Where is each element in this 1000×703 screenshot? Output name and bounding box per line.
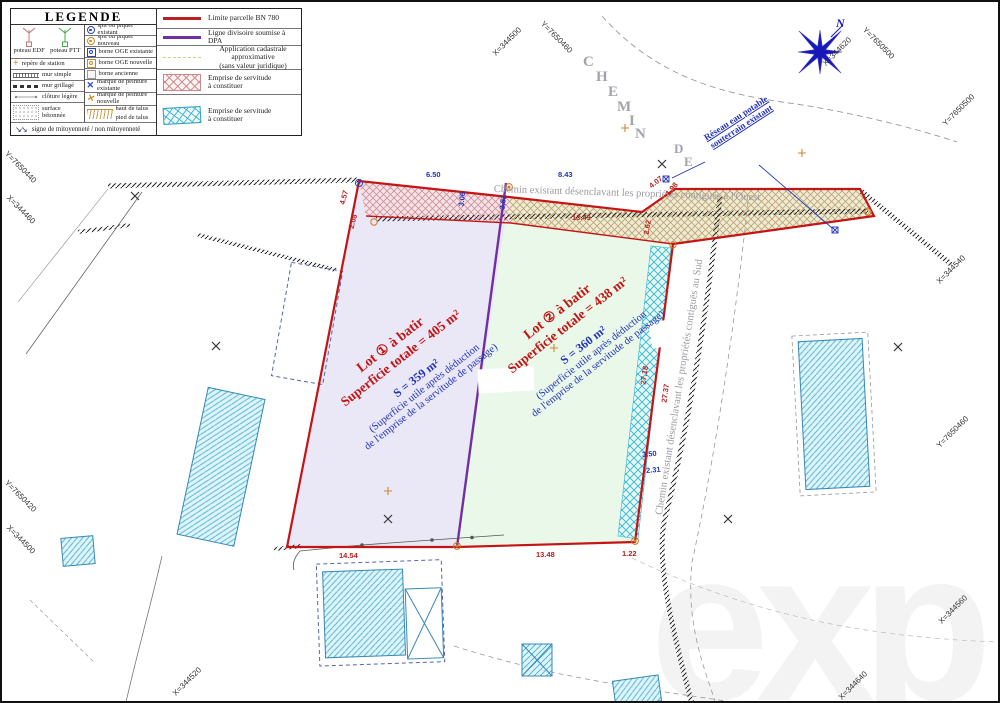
- road-letter-h: H: [596, 69, 608, 86]
- legend-row-marque-existante: ✕ marque de peinture existante: [85, 80, 157, 93]
- pied-de-talus-label: pied de talus: [116, 115, 149, 122]
- limite-parcelle-icon: [163, 17, 201, 20]
- marque-peinture-existante-icon: ✕: [87, 81, 95, 90]
- building-small-left: [61, 536, 95, 567]
- mur-grillage-icon: [13, 85, 39, 88]
- dim-350: 3.50: [642, 449, 657, 459]
- survey-plan-sheet: exp: [0, 0, 1000, 703]
- dim-650: 6.50: [426, 170, 441, 179]
- legend-row-borne-existante: borne OGE existante: [85, 47, 157, 58]
- building-hatched-left: [177, 387, 265, 546]
- application-cadastrale-label2: (sans valeur juridique): [219, 61, 286, 70]
- building-bottom-center: [316, 560, 444, 666]
- legend-column-1: poteau EDF poteau PTT + repère de sta: [11, 25, 85, 122]
- spit-existant-label: spit ou piquet existant: [98, 25, 155, 36]
- talus-icon: [87, 109, 113, 119]
- marque-peinture-nouvelle-icon: ✕: [85, 93, 95, 104]
- mur-simple-icon: [13, 73, 39, 78]
- poteau-edf-icon: [20, 27, 38, 47]
- dim-231: 2.31: [646, 465, 661, 475]
- legend-column-3: Limite parcelle BN 780 Ligne divisoire s…: [157, 9, 301, 135]
- borne-oge-existante-label: borne OGE existante: [99, 49, 154, 56]
- legend-row-mur-simple: mur simple: [11, 70, 84, 81]
- spit-nouveau-icon: [87, 37, 95, 45]
- poteau-ptt-icon: [56, 27, 74, 47]
- legend-row-cloture: clôture légère: [11, 92, 84, 103]
- borne-ancienne-label: borne ancienne: [99, 71, 139, 78]
- dim-1349: 13.49: [572, 213, 591, 222]
- emprise-servitude-pink-icon: [163, 74, 201, 91]
- emprise-servitude-pink-label2: à constituer: [208, 81, 243, 90]
- application-cadastrale-label: Application cadastrale approximative: [219, 44, 286, 61]
- legend-column-2: spit ou piquet existant spit ou piquet n…: [85, 25, 157, 122]
- legend-row-limite: Limite parcelle BN 780: [157, 9, 301, 29]
- dim-1348: 13.48: [536, 550, 555, 559]
- compass-north-label: N: [836, 16, 845, 31]
- borne-ancienne-icon: [87, 70, 96, 79]
- dim-381: 3.81: [498, 194, 509, 210]
- application-cadastrale-icon: [163, 57, 201, 58]
- emprise-servitude-cyan-label2: à constituer: [208, 114, 243, 123]
- spit-nouveau-label: spit ou piquet nouveau: [98, 36, 155, 47]
- mur-simple-label: mur simple: [42, 72, 71, 79]
- legend-title: LEGENDE: [11, 9, 156, 25]
- cloture-legere-icon: [13, 94, 39, 100]
- legend-row-borne-ancienne: borne ancienne: [85, 69, 157, 80]
- limite-parcelle-label: Limite parcelle BN 780: [208, 14, 279, 22]
- dim-1454: 14.54: [339, 551, 358, 560]
- road-letter-i: I: [629, 113, 635, 130]
- road-letter-d: D: [674, 141, 683, 157]
- marque-peinture-existante-label: marque de peinture existante: [97, 80, 154, 93]
- dim-122: 1.22: [622, 549, 637, 558]
- legend-box: LEGENDE poteau EDF: [10, 8, 302, 136]
- building-small-square: [522, 644, 552, 676]
- legend-row-cadastrale: Application cadastrale approximative (sa…: [157, 46, 301, 70]
- mitoyennete-icon: ↘∕↘: [15, 125, 27, 134]
- marque-peinture-nouvelle-label: marque de peinture nouvelle: [97, 93, 154, 106]
- legend-row-poteaux: poteau EDF poteau PTT: [11, 25, 84, 59]
- mitoyennete-label: signe de mitoyenneté / non mitoyenneté: [32, 126, 141, 133]
- legend-row-marque-nouvelle: ✕ marque de peinture nouvelle: [85, 93, 157, 106]
- ligne-divisoire-icon: [163, 36, 201, 39]
- repere-label: repère de station: [22, 61, 65, 68]
- legend-row-spit-existant: spit ou piquet existant: [85, 25, 157, 36]
- surface-betonnee-label: surface bétonnée: [42, 106, 82, 120]
- borne-oge-nouvelle-icon: [87, 59, 96, 68]
- legend-row-spit-nouveau: spit ou piquet nouveau: [85, 36, 157, 47]
- building-right: [792, 332, 876, 496]
- borne-oge-existante-icon: [87, 48, 96, 57]
- legend-row-mitoyennete: ↘∕↘ signe de mitoyenneté / non mitoyenne…: [11, 122, 156, 135]
- poteau-ptt-label: poteau PTT: [50, 47, 81, 54]
- legend-row-talus: haut de talus pied de talus: [85, 106, 157, 122]
- road-letter-e2: E: [684, 154, 693, 170]
- mur-grillage-label: mur grillagé: [42, 83, 74, 90]
- spit-existant-icon: [87, 26, 95, 34]
- legend-row-repere: + repère de station: [11, 59, 84, 70]
- ligne-divisoire-label: Ligne divisoire soumise à DPA: [208, 29, 298, 46]
- legend-row-servitude-cyan: Emprise de servitude à constituer: [157, 95, 301, 135]
- haut-de-talus-label: haut de talus: [116, 106, 149, 113]
- legend-row-mur-grillage: mur grillagé: [11, 81, 84, 92]
- cloture-label: clôture légère: [42, 94, 78, 101]
- dim-306: 3.06: [457, 191, 468, 207]
- road-letter-c: C: [583, 54, 594, 71]
- road-letter-n: N: [635, 126, 646, 143]
- emprise-servitude-cyan-icon: [163, 106, 202, 125]
- surface-betonnee-icon: [13, 105, 39, 120]
- station-mark-icon: +: [13, 59, 19, 69]
- legend-row-betonnee: surface bétonnée: [11, 103, 84, 122]
- poteau-edf-label: poteau EDF: [14, 47, 45, 54]
- borne-oge-nouvelle-label: borne OGE nouvelle: [99, 60, 153, 67]
- dim-843: 8.43: [558, 170, 573, 179]
- legend-row-borne-nouvelle: borne OGE nouvelle: [85, 58, 157, 69]
- legend-row-servitude-pink: Emprise de servitude à constituer: [157, 70, 301, 95]
- building-bottom-right: [612, 675, 661, 703]
